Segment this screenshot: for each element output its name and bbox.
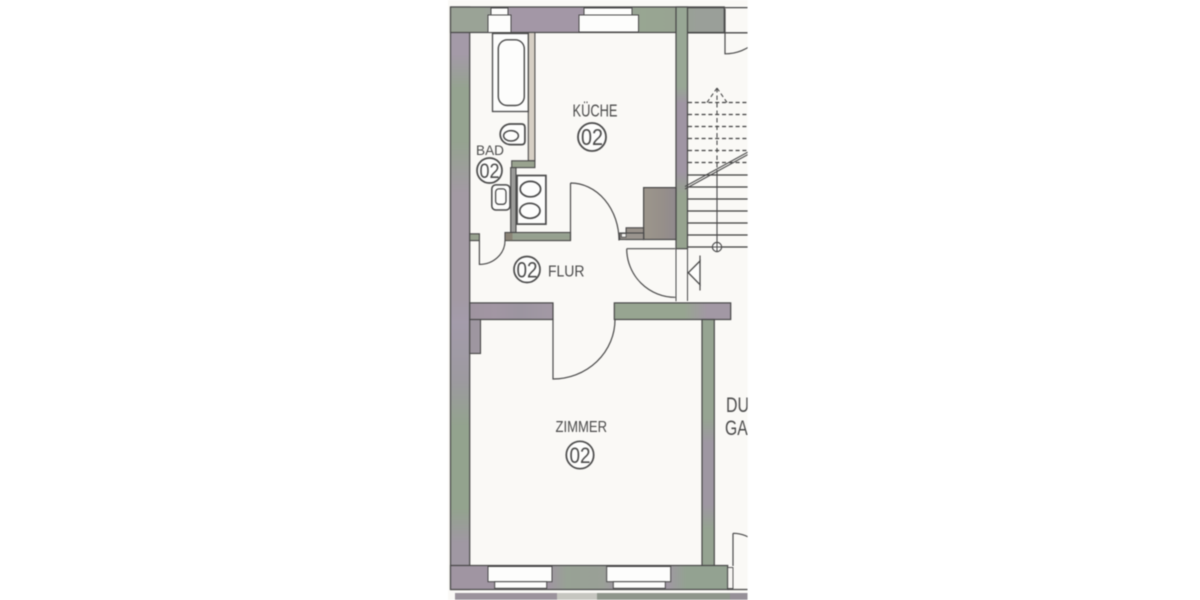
svg-text:FLUR: FLUR	[548, 264, 585, 281]
svg-text:ZIMMER: ZIMMER	[556, 419, 608, 436]
svg-text:KÜCHE: KÜCHE	[573, 101, 618, 121]
svg-text:02: 02	[480, 160, 500, 183]
svg-text:02: 02	[581, 124, 603, 150]
svg-text:02: 02	[570, 443, 591, 468]
svg-text:02: 02	[517, 257, 538, 282]
svg-text:BAD: BAD	[476, 142, 504, 158]
